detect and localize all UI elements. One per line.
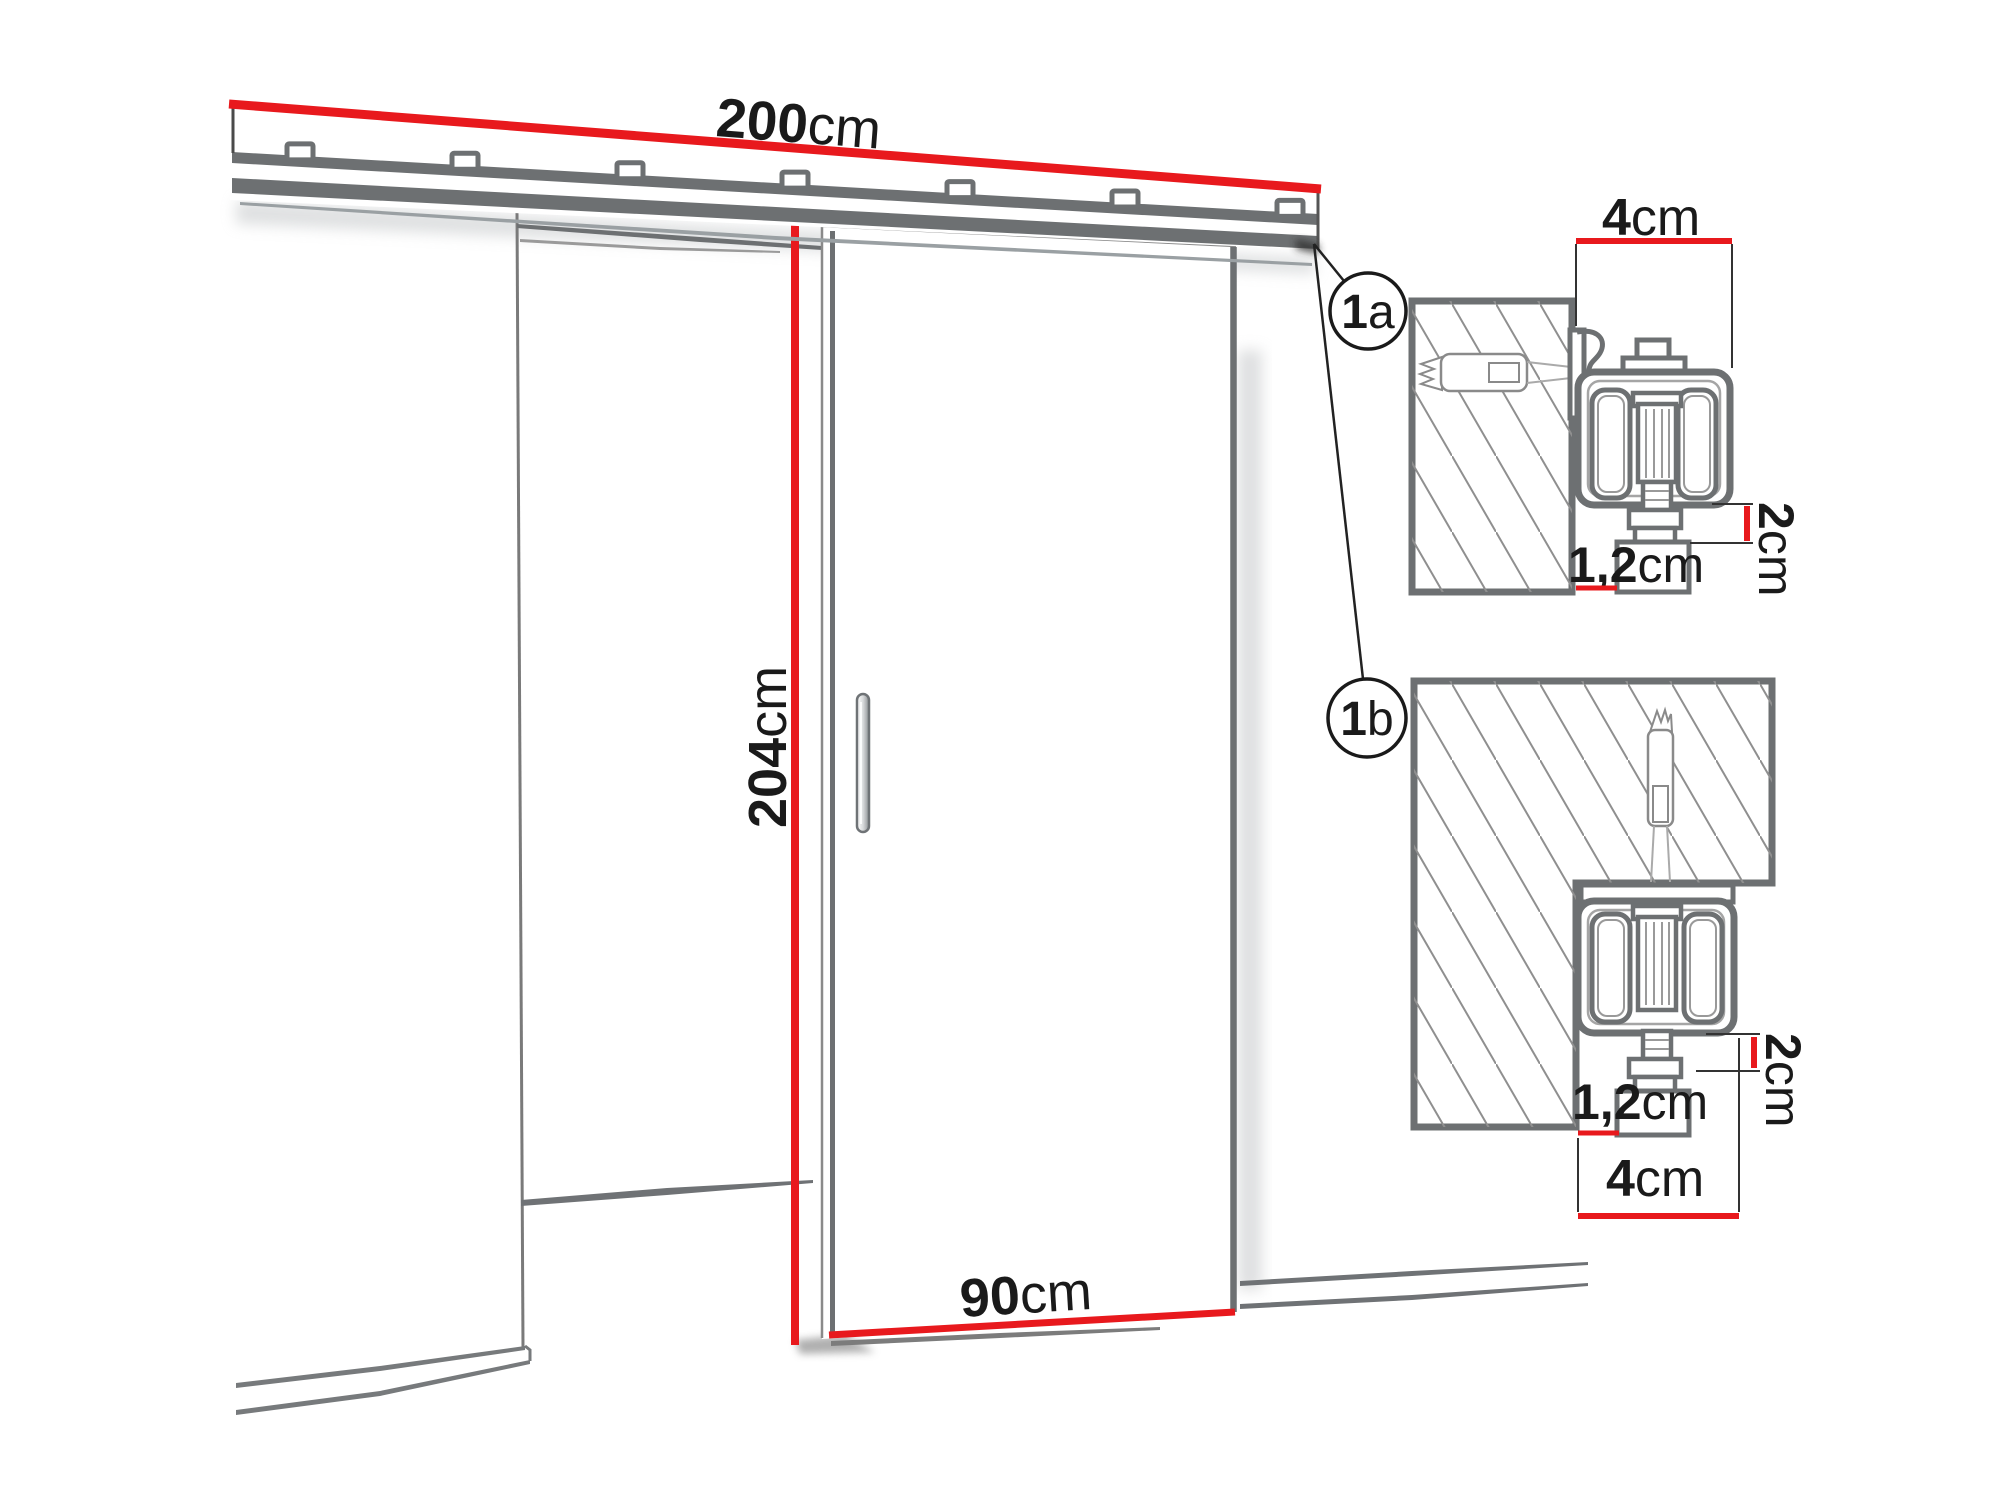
hanger-neck: [1643, 1031, 1671, 1059]
depth-label-1a: 4cm: [1602, 189, 1700, 247]
rail-clip: [1112, 191, 1138, 207]
left-baseboard-end-cap: [525, 1346, 530, 1361]
right-baseboard-bottom-line: [1240, 1283, 1588, 1309]
detail-1b-dimensions: 2cm 1,2cm 4cm: [1572, 1033, 1811, 1216]
rail-clip: [452, 153, 478, 169]
top-rail: 200cm: [229, 86, 1321, 266]
back-floor-line: [521, 1180, 813, 1206]
detail-1b: 2cm 1,2cm 4cm: [1414, 681, 1811, 1216]
axle-column: [1638, 404, 1676, 482]
sliding-door-panel: [822, 226, 1236, 1346]
door-handle: [857, 694, 869, 832]
door-height-label: 204cm: [738, 666, 798, 828]
screw-body: [1441, 354, 1527, 391]
callout-label-1b: 1b: [1340, 693, 1393, 746]
rail-clip: [782, 172, 808, 188]
hanger-neck: [1643, 482, 1671, 510]
rail-clip: [617, 163, 643, 179]
height-dimension: 204cm: [738, 218, 798, 1345]
detail-1a: 4cm 2cm 1,2cm: [1412, 189, 1804, 596]
door-face: [822, 226, 1236, 1339]
diagram-canvas: 204cm 200cm 90cm 1a 1b: [0, 0, 2000, 1500]
right-baseboard-top-line: [1240, 1262, 1588, 1286]
rail-width-label: 200cm: [714, 86, 883, 160]
axle-column: [1638, 917, 1676, 1010]
wall-hatch-1a: [1412, 301, 1572, 592]
door-width-label: 90cm: [958, 1261, 1093, 1329]
drop-label-1b: 2cm: [1755, 1033, 1811, 1127]
rail-clip: [1277, 200, 1303, 216]
right-baseboard: [1240, 1262, 1588, 1309]
sliding-door-diagram: 204cm 200cm 90cm 1a 1b: [0, 0, 2000, 1500]
left-baseboard: [236, 1346, 530, 1415]
door-right-shadow: [1238, 350, 1262, 1290]
callout-label-1a: 1a: [1341, 286, 1395, 339]
screw-body: [1648, 730, 1673, 826]
hanger-step-1: [1629, 510, 1681, 528]
rail-clip: [947, 182, 973, 198]
left-baseboard-top-line: [236, 1346, 525, 1388]
rail-clip: [287, 144, 313, 160]
depth-label-1b: 4cm: [1606, 1150, 1704, 1208]
gap-label-1a: 1,2cm: [1568, 537, 1704, 593]
drop-label-1a: 2cm: [1748, 502, 1804, 596]
doorway-left-edge-line: [517, 212, 523, 1347]
gap-label-1b: 1,2cm: [1572, 1074, 1708, 1130]
callouts: 1a 1b: [1314, 244, 1406, 757]
